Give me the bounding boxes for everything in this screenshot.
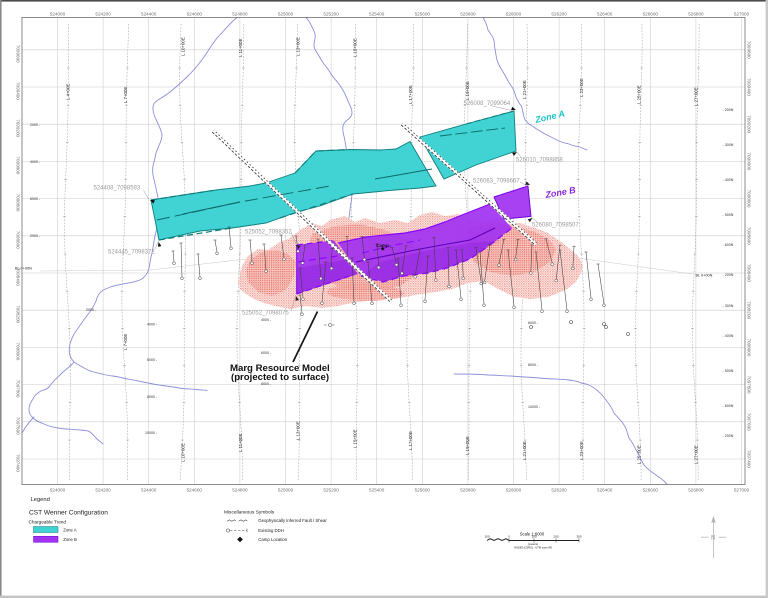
svg-text:- 200N: - 200N <box>723 434 734 438</box>
svg-text:7097800: 7097800 <box>16 380 21 398</box>
svg-text:Zone A: Zone A <box>63 528 76 533</box>
svg-text:524000: 524000 <box>50 12 66 17</box>
svg-text:Zone B: Zone B <box>63 537 77 542</box>
svg-text:8000 -: 8000 - <box>147 395 158 399</box>
svg-text:526010_7098858: 526010_7098858 <box>516 158 563 164</box>
svg-text:L 10+00E: L 10+00E <box>181 37 186 56</box>
svg-text:L 21+00E: L 21+00E <box>522 80 527 99</box>
svg-text:525200: 525200 <box>323 12 339 17</box>
svg-text:2000 -: 2000 - <box>30 234 41 238</box>
svg-text:7099000: 7099000 <box>16 156 21 174</box>
svg-text:525800: 525800 <box>460 488 476 493</box>
svg-text:7098000: 7098000 <box>747 338 752 356</box>
svg-text:525800: 525800 <box>460 12 476 17</box>
svg-text:524445_7098372: 524445_7098372 <box>108 250 155 256</box>
svg-text:(projected to surface): (projected to surface) <box>231 372 329 383</box>
svg-text:- 400N: - 400N <box>723 178 734 182</box>
svg-text:300: 300 <box>576 534 581 538</box>
svg-text:7098400: 7098400 <box>747 264 752 282</box>
svg-text:Legend: Legend <box>31 497 50 503</box>
svg-text:7098800: 7098800 <box>747 190 752 208</box>
svg-text:- 200N: - 200N <box>723 273 734 277</box>
svg-text:524400: 524400 <box>141 488 157 493</box>
svg-text:L 19+00E: L 19+00E <box>465 81 470 100</box>
svg-text:526063_7098667: 526063_7098667 <box>473 179 520 185</box>
svg-text:7098600: 7098600 <box>747 227 752 245</box>
svg-text:7098200: 7098200 <box>16 305 21 323</box>
svg-text:525200: 525200 <box>323 488 339 493</box>
svg-text:L 13+00E: L 13+00E <box>296 37 301 56</box>
svg-text:L 27+00E: L 27+00E <box>694 87 699 106</box>
svg-text:L 7+00E: L 7+00E <box>123 334 128 350</box>
svg-text:- 300N: - 300N <box>723 304 734 308</box>
svg-text:524800: 524800 <box>232 488 248 493</box>
svg-text:7099600: 7099600 <box>747 41 752 59</box>
svg-text:- 400N: - 400N <box>723 334 734 338</box>
svg-text:- 600N: - 600N <box>723 404 734 408</box>
svg-text:526600: 526600 <box>643 488 659 493</box>
svg-text:7099200: 7099200 <box>16 119 21 137</box>
svg-text:524600: 524600 <box>187 488 203 493</box>
svg-text:- 300N: - 300N <box>723 143 734 147</box>
svg-text:526000: 526000 <box>506 488 522 493</box>
svg-text:Geophysically Inferred Fault /: Geophysically Inferred Fault / Shear <box>258 518 327 523</box>
svg-text:525000: 525000 <box>278 488 294 493</box>
svg-text:524600: 524600 <box>187 12 203 17</box>
svg-text:L 11+00E: L 11+00E <box>238 433 243 452</box>
svg-text:526800: 526800 <box>688 488 704 493</box>
svg-text:525400: 525400 <box>369 488 385 493</box>
svg-text:L 4+00E: L 4+00E <box>66 84 71 100</box>
svg-text:- 500N: - 500N <box>723 369 734 373</box>
svg-text:6000 -: 6000 - <box>261 351 272 355</box>
svg-text:525600: 525600 <box>415 488 431 493</box>
svg-text:L 10+00E: L 10+00E <box>181 443 186 462</box>
svg-text:100: 100 <box>531 534 536 538</box>
svg-text:525052_7098075: 525052_7098075 <box>242 311 289 317</box>
svg-text:L 11+00E: L 11+00E <box>238 38 243 57</box>
svg-text:524000: 524000 <box>50 488 66 493</box>
svg-text:526080_7098507: 526080_7098507 <box>532 223 579 229</box>
svg-text:524400: 524400 <box>141 12 157 17</box>
svg-text:Miscellaneous Symbols: Miscellaneous Symbols <box>224 509 275 515</box>
svg-text:6000 -: 6000 - <box>147 358 158 362</box>
svg-text:524800: 524800 <box>232 12 248 17</box>
svg-text:- 600N: - 600N <box>723 243 734 247</box>
svg-text:8000 -: 8000 - <box>528 363 539 367</box>
svg-text:7099400: 7099400 <box>747 78 752 96</box>
svg-text:7098200: 7098200 <box>747 301 752 319</box>
svg-text:7098600: 7098600 <box>16 231 21 249</box>
svg-text:L 21+00E: L 21+00E <box>522 441 527 460</box>
svg-text:7098400: 7098400 <box>16 268 21 286</box>
svg-text:200: 200 <box>553 534 558 538</box>
svg-text:526400: 526400 <box>597 488 613 493</box>
svg-text:10000 -: 10000 - <box>528 405 541 409</box>
svg-text:L 13+00E: L 13+00E <box>296 421 301 440</box>
svg-text:7097400: 7097400 <box>747 450 752 468</box>
svg-text:Chargeable Trend: Chargeable Trend <box>29 519 67 524</box>
svg-text:527000: 527000 <box>734 12 750 17</box>
svg-text:525000: 525000 <box>278 12 294 17</box>
svg-text:526600: 526600 <box>643 12 659 17</box>
svg-text:4000 -: 4000 - <box>261 318 272 322</box>
svg-text:527000: 527000 <box>734 488 750 493</box>
svg-text:2000 -: 2000 - <box>30 123 41 127</box>
svg-text:524200: 524200 <box>95 12 111 17</box>
svg-text:525052_7098352: 525052_7098352 <box>245 230 292 236</box>
svg-text:4000 -: 4000 - <box>30 160 41 164</box>
svg-text:Camp Location: Camp Location <box>258 537 288 542</box>
svg-text:BL 0+00N: BL 0+00N <box>15 267 32 271</box>
svg-text:L 17+00E: L 17+00E <box>408 431 413 450</box>
svg-text:526008_7099064: 526008_7099064 <box>464 101 511 107</box>
svg-text:L 19+00E: L 19+00E <box>465 436 470 455</box>
svg-text:6000 -: 6000 - <box>528 321 539 325</box>
svg-text:L 23+00E: L 23+00E <box>579 78 584 97</box>
svg-text:524408_7098593: 524408_7098593 <box>94 186 141 192</box>
svg-text:10000 -: 10000 - <box>145 431 158 435</box>
svg-text:526800: 526800 <box>688 12 704 17</box>
svg-text:7099200: 7099200 <box>747 115 752 133</box>
svg-text:524200: 524200 <box>95 488 111 493</box>
svg-text:7097600: 7097600 <box>16 417 21 435</box>
svg-text:526200: 526200 <box>551 488 567 493</box>
svg-text:4000 -: 4000 - <box>147 323 158 327</box>
svg-text:7098000: 7098000 <box>16 342 21 360</box>
svg-text:- 500N: - 500N <box>723 213 734 217</box>
svg-text:7098800: 7098800 <box>16 194 21 212</box>
svg-text:L 25+00E: L 25+00E <box>637 85 642 104</box>
svg-text:525600: 525600 <box>415 12 431 17</box>
svg-text:7099600: 7099600 <box>16 45 21 63</box>
svg-text:526400: 526400 <box>597 12 613 17</box>
svg-text:L 7+00E: L 7+00E <box>123 87 128 103</box>
svg-text:L 15+00E: L 15+00E <box>353 429 358 448</box>
svg-text:525400: 525400 <box>369 12 385 17</box>
svg-text:L 15+00E: L 15+00E <box>353 38 358 57</box>
svg-text:7099400: 7099400 <box>16 82 21 100</box>
svg-text:7097400: 7097400 <box>16 454 21 472</box>
svg-text:526000: 526000 <box>506 12 522 17</box>
svg-text:NAD83 (CSRS) - UTM zone 8N: NAD83 (CSRS) - UTM zone 8N <box>514 545 552 549</box>
svg-text:N: N <box>711 536 715 542</box>
svg-text:L 27+00E: L 27+00E <box>694 445 699 464</box>
svg-text:526200: 526200 <box>551 12 567 17</box>
svg-text:- 200N: - 200N <box>723 108 734 112</box>
svg-text:6000 -: 6000 - <box>30 197 41 201</box>
svg-text:L 23+00E: L 23+00E <box>579 441 584 460</box>
svg-text:CST Wenner Configuration: CST Wenner Configuration <box>29 510 108 517</box>
svg-text:7097800: 7097800 <box>747 376 752 394</box>
svg-text:Existing DDH: Existing DDH <box>258 528 284 533</box>
svg-text:7099000: 7099000 <box>747 152 752 170</box>
svg-text:L 17+00E: L 17+00E <box>408 85 413 104</box>
svg-text:100: 100 <box>484 534 489 538</box>
svg-text:BL 0+00N: BL 0+00N <box>696 274 713 278</box>
svg-text:7097600: 7097600 <box>747 413 752 431</box>
